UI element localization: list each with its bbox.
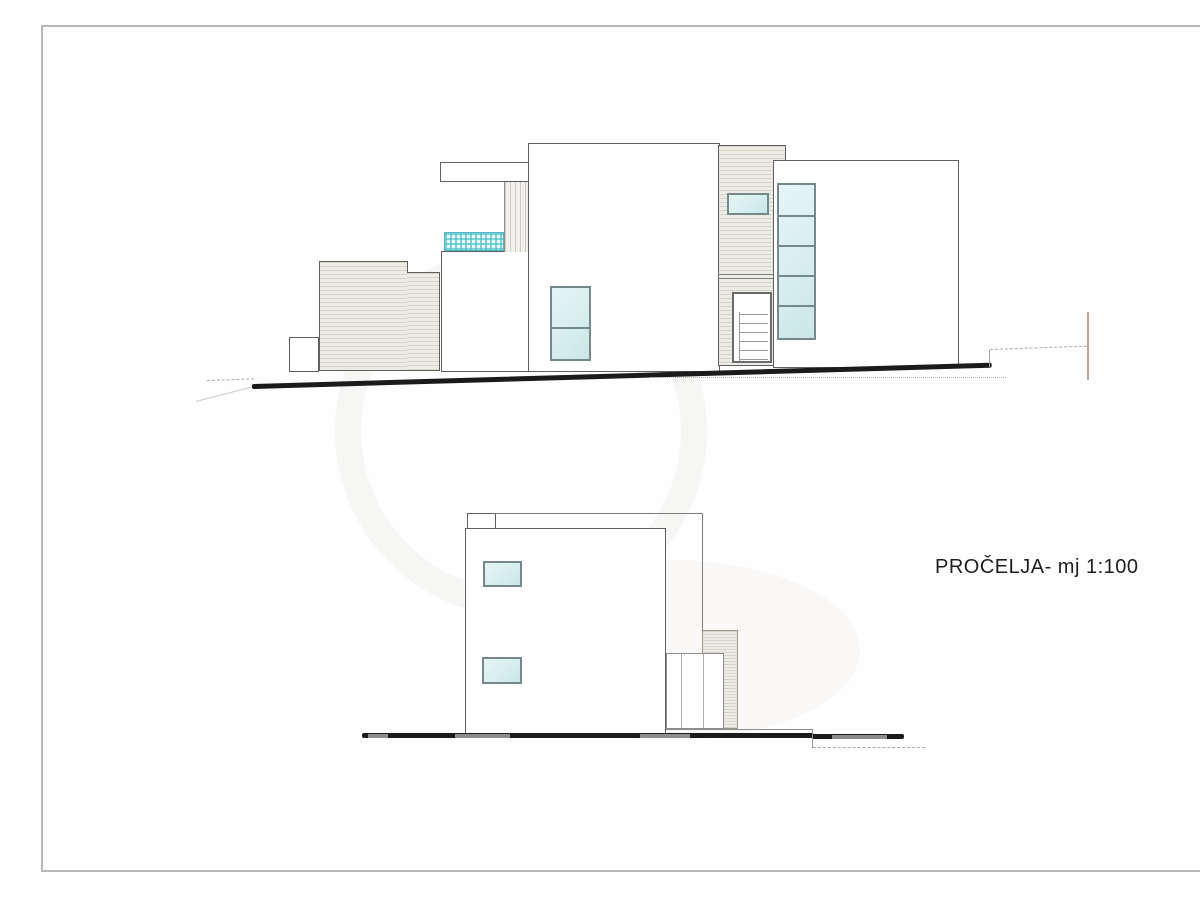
- glazed-strip-div-3: [779, 275, 814, 277]
- terrain-dotted: [650, 377, 1006, 378]
- scale-label: PROČELJA- mj 1:100: [935, 556, 1139, 579]
- ground-line-main: [362, 733, 814, 738]
- annex-panel-div-2: [703, 654, 704, 728]
- left-hatched-block: [319, 261, 408, 371]
- annex-panels: [666, 653, 724, 729]
- canopy-slab: [440, 162, 529, 182]
- tower-window: [727, 193, 769, 215]
- glazed-strip-div-2: [779, 245, 814, 247]
- tower-floor-line-a: [718, 274, 774, 275]
- entrance-door: [732, 292, 772, 363]
- boundary-marker: [1087, 312, 1089, 380]
- frame-bottom: [41, 870, 1200, 872]
- frame-top: [41, 25, 1200, 27]
- glazed-strip: [777, 183, 816, 340]
- terrain-dash-right: [990, 346, 1087, 350]
- terrain-diagonal-left: [196, 386, 254, 402]
- left-hatched-block-step: [407, 272, 440, 371]
- plinth-line: [666, 729, 813, 730]
- left-low-annex: [289, 337, 319, 372]
- watermark-patch: [640, 734, 690, 738]
- frame-left: [41, 25, 43, 872]
- parapet-step: [467, 513, 496, 529]
- central-window: [550, 286, 591, 361]
- upper-window: [483, 561, 522, 587]
- stair-treads: [740, 314, 768, 361]
- main-building: [465, 528, 666, 736]
- terrain-dash-left: [207, 378, 254, 381]
- watermark-patch: [832, 735, 887, 739]
- watermark-patch: [368, 734, 388, 738]
- roof-slab-edge: [702, 513, 703, 648]
- slat-screen: [504, 182, 529, 252]
- drawing-sheet: PROČELJA- mj 1:100: [0, 0, 1200, 900]
- glazed-strip-div-1: [779, 215, 814, 217]
- tower-floor-line-b: [718, 278, 774, 279]
- terrain-step-tick: [989, 350, 990, 367]
- watermark-patch: [455, 734, 510, 738]
- central-building-lower: [441, 251, 529, 372]
- glazed-strip-div-4: [779, 305, 814, 307]
- ground-step-tick: [812, 730, 813, 748]
- ground-dash-right: [813, 747, 925, 748]
- central-window-divider: [552, 327, 589, 329]
- roof-slab-line: [495, 513, 703, 514]
- terrace-railing-tiles: [444, 232, 504, 251]
- annex-panel-div-1: [681, 654, 682, 728]
- lower-window: [482, 657, 522, 684]
